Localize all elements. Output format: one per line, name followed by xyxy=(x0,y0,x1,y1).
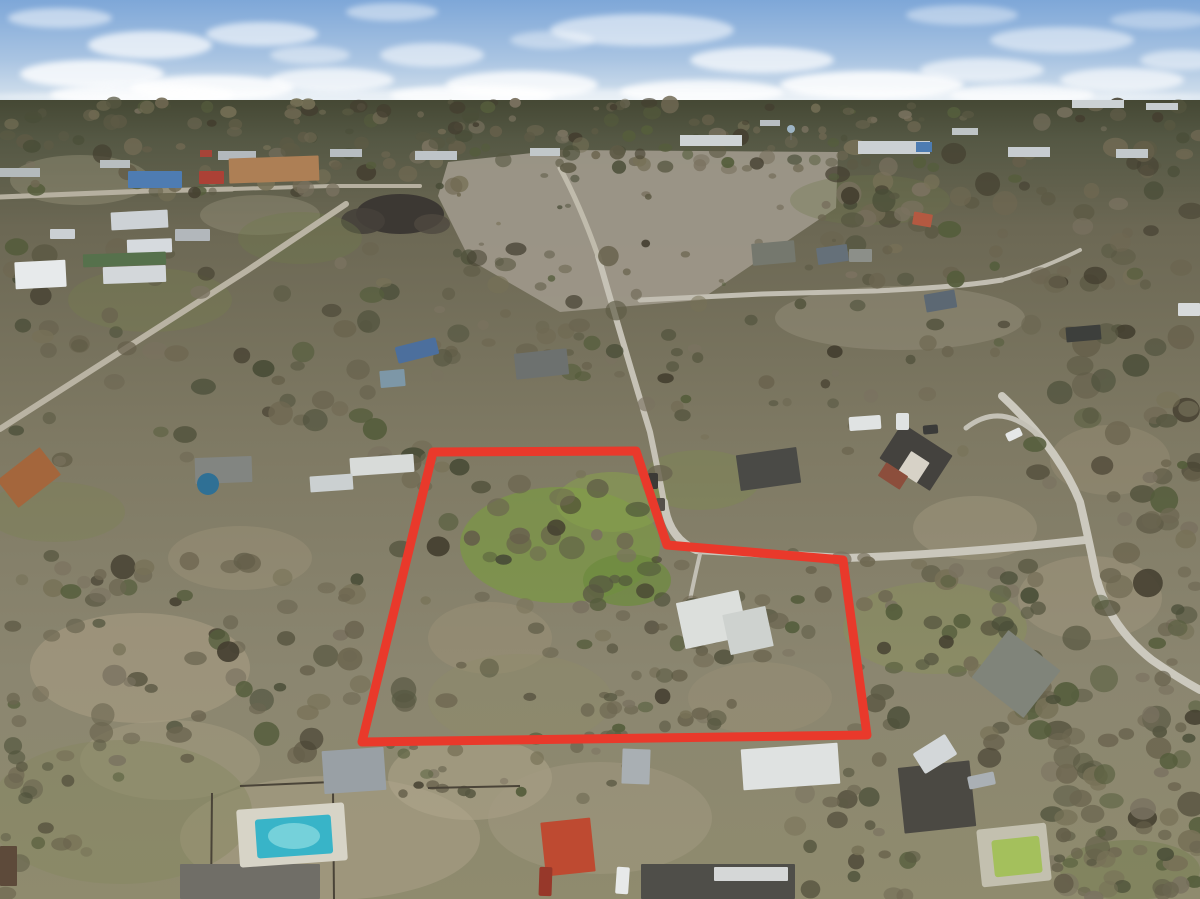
distant-building xyxy=(530,148,560,156)
tree xyxy=(450,459,470,476)
tree xyxy=(641,125,653,135)
tree xyxy=(286,104,296,110)
tree xyxy=(44,550,60,562)
tree xyxy=(661,329,676,341)
tree xyxy=(1106,575,1133,598)
tree xyxy=(319,110,326,115)
tree xyxy=(351,573,364,585)
tree xyxy=(1099,793,1123,808)
tree xyxy=(818,214,826,221)
tree xyxy=(843,108,855,115)
tree xyxy=(509,115,516,121)
house-white-northeast xyxy=(1178,303,1200,316)
tree xyxy=(869,273,886,289)
tree xyxy=(191,379,216,395)
tree xyxy=(803,840,817,853)
tree xyxy=(530,751,544,765)
tree xyxy=(680,710,692,718)
tree xyxy=(335,257,347,269)
tree xyxy=(1168,782,1181,791)
tree xyxy=(622,130,635,142)
tree xyxy=(528,623,544,634)
distant-building xyxy=(680,135,742,146)
tree xyxy=(273,569,293,586)
tree xyxy=(947,107,960,118)
tree xyxy=(962,111,974,119)
house-dark-bottom-right xyxy=(898,760,977,833)
tree xyxy=(540,173,548,178)
tree xyxy=(1041,192,1056,205)
tree xyxy=(346,360,369,380)
tree xyxy=(223,615,238,629)
tree xyxy=(198,267,215,281)
tree xyxy=(851,846,864,856)
tree xyxy=(742,120,749,125)
tree xyxy=(1143,225,1159,236)
tree xyxy=(1159,685,1175,695)
tree xyxy=(456,662,467,669)
tree xyxy=(978,748,1002,768)
tree xyxy=(671,348,683,356)
tree xyxy=(801,625,815,639)
building-red xyxy=(199,171,224,184)
distant-building xyxy=(760,120,780,126)
tree xyxy=(5,238,29,255)
tree xyxy=(191,710,206,722)
tree xyxy=(272,376,286,385)
tree xyxy=(801,880,821,898)
tree xyxy=(1090,665,1118,692)
tree xyxy=(142,342,168,360)
tree xyxy=(1069,790,1091,807)
tree xyxy=(616,610,630,621)
tree xyxy=(927,163,939,172)
tree xyxy=(661,96,679,114)
tree xyxy=(795,299,807,310)
tree xyxy=(821,379,831,388)
tree xyxy=(1046,695,1061,704)
tree xyxy=(1023,437,1046,452)
tree xyxy=(631,671,642,681)
tree xyxy=(957,445,968,456)
tree xyxy=(277,600,298,614)
tree xyxy=(357,310,380,333)
tree xyxy=(201,101,213,113)
tree xyxy=(569,319,590,333)
tree xyxy=(487,276,508,294)
tree xyxy=(263,145,271,150)
tree xyxy=(1154,671,1171,687)
tree xyxy=(598,246,619,266)
tree xyxy=(56,750,74,761)
tree xyxy=(383,158,396,169)
tree xyxy=(871,117,878,123)
tree xyxy=(113,643,126,655)
tree xyxy=(827,812,848,829)
tree xyxy=(1091,456,1113,475)
tree xyxy=(32,686,49,702)
tree xyxy=(1056,828,1071,843)
distant-building xyxy=(0,168,40,177)
tree xyxy=(500,778,508,785)
tree xyxy=(398,749,411,759)
tree xyxy=(783,398,792,406)
tree xyxy=(617,533,634,550)
warehouse-white-2 xyxy=(127,238,172,254)
tree xyxy=(828,138,840,147)
tree xyxy=(339,588,356,600)
tree xyxy=(595,630,611,642)
tree xyxy=(277,631,295,646)
tree xyxy=(23,140,41,153)
tree xyxy=(439,513,459,531)
tree xyxy=(16,762,28,772)
tree xyxy=(478,320,489,330)
tree xyxy=(654,592,670,606)
tree xyxy=(953,614,970,629)
tree xyxy=(516,787,527,797)
tree xyxy=(524,132,535,143)
tree xyxy=(145,684,158,693)
tree xyxy=(841,212,864,227)
tree xyxy=(1082,407,1099,424)
tree xyxy=(721,157,734,168)
shed-gray-bottom xyxy=(621,749,650,785)
cloud xyxy=(88,31,212,59)
tree xyxy=(591,748,600,755)
distant-building xyxy=(952,128,978,135)
tree xyxy=(937,221,961,238)
tree xyxy=(557,130,568,137)
tree xyxy=(753,126,760,133)
tree xyxy=(815,586,832,603)
tree xyxy=(604,113,619,126)
house-dark-bottom-white-wing xyxy=(714,867,788,881)
rv-white xyxy=(849,415,882,431)
tree xyxy=(58,131,69,141)
tree xyxy=(975,172,1000,196)
tree xyxy=(124,677,136,687)
tree xyxy=(832,239,836,242)
tree xyxy=(1136,673,1150,682)
tree xyxy=(825,158,837,167)
truck-red-bottom xyxy=(538,867,552,896)
tree xyxy=(606,344,624,358)
tree xyxy=(872,189,895,212)
tree xyxy=(1042,476,1056,489)
tree xyxy=(307,694,330,710)
tree xyxy=(537,328,556,344)
tree xyxy=(1057,107,1073,118)
warehouse-white-1 xyxy=(111,210,169,231)
tree xyxy=(180,452,194,463)
tree xyxy=(577,640,593,650)
tree xyxy=(354,137,369,150)
tree xyxy=(587,479,609,498)
tree xyxy=(300,665,315,675)
tree xyxy=(555,159,564,167)
tree xyxy=(610,104,618,111)
tree xyxy=(1152,112,1163,122)
building-white-bottom xyxy=(741,743,841,791)
tree xyxy=(785,621,800,633)
tree xyxy=(93,619,106,628)
tree xyxy=(645,194,652,200)
tree xyxy=(822,797,839,808)
tree xyxy=(1115,325,1135,339)
tree xyxy=(565,204,571,208)
tree xyxy=(516,598,533,614)
tree xyxy=(1107,491,1121,502)
tree xyxy=(606,301,627,321)
tree xyxy=(879,850,891,858)
tree xyxy=(417,111,424,117)
tree xyxy=(829,173,840,180)
tree xyxy=(333,320,356,337)
tree xyxy=(1,833,11,841)
tree xyxy=(332,401,349,416)
tree xyxy=(907,121,921,132)
tree xyxy=(482,338,496,346)
tree xyxy=(1028,720,1051,739)
tree xyxy=(907,102,917,109)
tree xyxy=(4,119,18,130)
tree xyxy=(745,315,758,326)
sand-patch xyxy=(488,762,712,874)
tree xyxy=(416,132,431,141)
tree xyxy=(990,261,1000,271)
tree xyxy=(177,590,193,601)
tree xyxy=(547,520,565,536)
tree xyxy=(184,652,207,666)
tree xyxy=(535,282,547,290)
tree xyxy=(4,773,23,789)
tree xyxy=(641,240,650,248)
tree xyxy=(877,642,891,655)
tree xyxy=(885,662,903,674)
tree xyxy=(1148,638,1166,649)
tree xyxy=(1178,567,1191,578)
tree xyxy=(53,456,66,466)
warehouse-white-3 xyxy=(103,265,167,284)
tree xyxy=(591,128,598,135)
tree xyxy=(1172,750,1190,768)
tree xyxy=(362,242,379,255)
tree xyxy=(495,153,511,167)
tree xyxy=(7,693,20,705)
tree xyxy=(463,265,480,277)
tree xyxy=(1130,798,1156,820)
tree xyxy=(759,375,775,389)
tree xyxy=(1171,604,1184,615)
tree xyxy=(563,145,581,160)
tree xyxy=(1178,401,1198,417)
tree xyxy=(274,683,286,692)
distant-building xyxy=(100,160,130,168)
tree xyxy=(506,534,531,554)
tree xyxy=(989,245,1002,257)
tree xyxy=(18,792,32,804)
tree xyxy=(659,144,673,152)
tree xyxy=(782,649,795,657)
tree xyxy=(1157,848,1174,861)
distant-building xyxy=(1008,147,1050,157)
tree xyxy=(793,164,804,172)
tree xyxy=(638,397,656,412)
tree xyxy=(475,592,490,602)
tree xyxy=(641,98,657,108)
house-gray-small-north xyxy=(849,249,872,262)
tree xyxy=(805,265,814,271)
tree xyxy=(681,395,692,404)
tree xyxy=(1054,810,1077,826)
tree xyxy=(427,536,450,556)
tree xyxy=(1110,233,1131,252)
tree xyxy=(692,352,703,363)
distant-building xyxy=(1072,100,1124,108)
tree xyxy=(1018,559,1038,574)
tree xyxy=(1081,805,1105,823)
cloud xyxy=(270,68,394,92)
aerial-photo xyxy=(0,0,1200,899)
tree xyxy=(326,183,340,196)
tree xyxy=(173,426,197,443)
tree xyxy=(496,222,501,226)
tree xyxy=(983,734,1005,750)
tree xyxy=(1030,267,1051,284)
tree xyxy=(674,409,690,421)
tree xyxy=(626,502,650,517)
tree xyxy=(882,246,892,255)
tree xyxy=(438,766,447,772)
tree xyxy=(436,183,444,190)
tree xyxy=(671,670,687,682)
tree xyxy=(765,104,775,111)
distant-building xyxy=(1116,149,1148,158)
tree xyxy=(1099,881,1118,898)
tree xyxy=(290,361,304,370)
tree xyxy=(656,668,673,683)
tree xyxy=(998,321,1010,329)
tree xyxy=(237,554,261,573)
tree xyxy=(1161,459,1172,467)
tree xyxy=(827,398,839,408)
tree xyxy=(1084,183,1100,199)
tree xyxy=(381,151,390,158)
tree xyxy=(693,653,714,668)
tree xyxy=(89,588,111,603)
tree xyxy=(657,161,673,173)
water-tower-tank xyxy=(787,125,795,133)
tree xyxy=(1143,472,1158,483)
tree xyxy=(506,243,527,256)
tree xyxy=(832,370,840,378)
tree xyxy=(15,319,31,333)
tree xyxy=(593,107,599,111)
tree xyxy=(841,187,859,205)
tree xyxy=(887,706,910,729)
grass-patch xyxy=(0,740,252,884)
tree xyxy=(220,560,241,573)
tree xyxy=(391,677,417,702)
tree xyxy=(886,604,903,621)
tree xyxy=(1144,181,1164,199)
tree xyxy=(707,718,721,730)
tree xyxy=(947,271,965,288)
distant-building xyxy=(916,142,932,152)
tree xyxy=(117,341,136,355)
tree xyxy=(447,744,463,757)
tree xyxy=(227,127,242,137)
tree xyxy=(689,119,700,126)
tree xyxy=(843,768,855,777)
tree xyxy=(643,106,661,120)
tree xyxy=(950,187,971,206)
cloud xyxy=(990,27,1134,53)
tree xyxy=(345,129,354,135)
tree xyxy=(155,98,169,109)
tree xyxy=(102,308,119,324)
tree xyxy=(769,400,779,406)
tree xyxy=(666,361,679,372)
tree xyxy=(719,279,724,283)
tree xyxy=(614,371,625,378)
tree xyxy=(303,409,328,431)
tree xyxy=(434,306,445,313)
tree xyxy=(109,326,122,338)
tree xyxy=(1033,113,1050,130)
tree xyxy=(1092,595,1109,610)
cloud xyxy=(380,43,484,67)
tree xyxy=(809,155,821,166)
tree xyxy=(722,282,726,286)
tree xyxy=(992,616,1014,631)
tree xyxy=(93,739,106,751)
house-gray-north xyxy=(751,240,796,266)
tree xyxy=(1071,848,1083,859)
tree xyxy=(124,138,142,155)
tree xyxy=(742,165,752,172)
tree xyxy=(253,360,275,377)
tree xyxy=(992,191,1017,215)
tree xyxy=(180,552,200,570)
tree xyxy=(622,700,635,708)
tree xyxy=(51,838,71,851)
tree xyxy=(1086,859,1096,866)
tree xyxy=(939,635,954,648)
tree xyxy=(856,597,873,611)
tree xyxy=(1160,508,1179,524)
tree xyxy=(1176,132,1189,143)
tree xyxy=(209,188,217,196)
tree xyxy=(600,702,618,719)
tree xyxy=(1182,734,1195,743)
tree xyxy=(473,122,480,127)
tree xyxy=(681,251,690,257)
tree xyxy=(638,702,653,713)
tree xyxy=(25,111,42,123)
tree xyxy=(300,728,324,750)
tree xyxy=(753,650,772,663)
tree xyxy=(990,585,1012,603)
tree xyxy=(523,693,536,701)
tree xyxy=(1084,267,1107,285)
car-white-bottom xyxy=(615,867,630,895)
tree xyxy=(464,531,480,546)
tree xyxy=(1164,120,1176,131)
tree xyxy=(113,772,125,781)
tree xyxy=(848,871,861,882)
